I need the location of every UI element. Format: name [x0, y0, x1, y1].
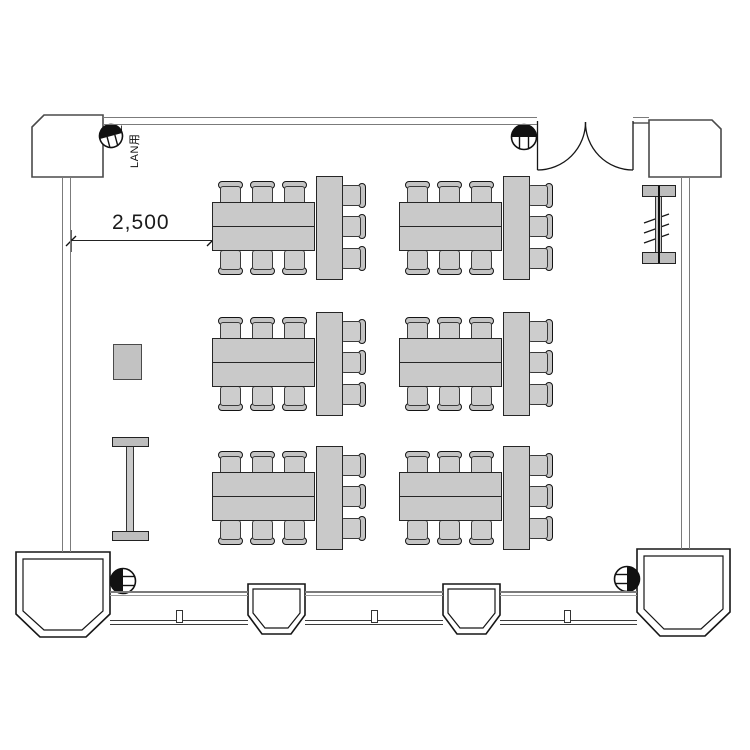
end-table	[503, 176, 530, 280]
outlet-symbol-bottom-left	[111, 569, 136, 594]
door-left-swing-arc	[538, 122, 586, 170]
top-right-wall-block	[649, 120, 721, 177]
chair-seat	[284, 251, 305, 271]
bottom-left-bay-column	[16, 552, 110, 637]
long-table-pair	[212, 338, 315, 387]
chair-seat	[471, 521, 492, 541]
left-ibeam-top-flange	[112, 437, 149, 447]
chair-seat	[439, 251, 460, 271]
chair-seat	[439, 521, 460, 541]
bottom-facade-line-2	[500, 624, 637, 625]
chair	[528, 484, 553, 509]
bottom-sill-line-2	[305, 595, 443, 596]
equipment-box	[113, 344, 142, 380]
bottom-right-bay-column	[637, 549, 730, 636]
chair	[341, 382, 366, 407]
floor-plan: 2,500 2 LAN用	[0, 0, 750, 750]
chair	[341, 516, 366, 541]
chair	[528, 453, 553, 478]
table-divider-line	[399, 496, 502, 497]
left-ibeam-web	[126, 446, 134, 532]
bottom-sill-line-2	[500, 595, 637, 596]
chair	[469, 520, 494, 545]
chair	[341, 183, 366, 208]
long-table-pair	[212, 202, 315, 251]
chair	[437, 520, 462, 545]
left-wall-outer-line	[62, 178, 63, 552]
window-mullion	[371, 610, 378, 623]
chair	[437, 250, 462, 275]
chair-seat	[529, 185, 549, 206]
chair-seat	[342, 321, 362, 342]
chair-seat	[252, 387, 273, 407]
chair-seat	[529, 384, 549, 405]
chair-seat	[284, 521, 305, 541]
chair-seat	[342, 185, 362, 206]
chair	[528, 319, 553, 344]
chair-seat	[342, 486, 362, 507]
chair	[405, 250, 430, 275]
right-wall-inner-line	[681, 177, 682, 549]
table-cluster	[212, 312, 367, 416]
bottom-facade-line-2	[110, 624, 248, 625]
bottom-sill-line	[500, 591, 637, 593]
dimension-label: 2,500	[112, 211, 170, 235]
bottom-sill-line	[305, 591, 443, 593]
bottom-sill-line	[110, 591, 248, 593]
window-mullion	[564, 610, 571, 623]
chair-seat	[529, 321, 549, 342]
chair-seat	[439, 387, 460, 407]
top-wall-right-stub	[633, 117, 649, 118]
lan-count-label: 2	[113, 124, 125, 131]
top-left-wall-block	[32, 115, 103, 177]
table-cluster	[399, 176, 554, 280]
table-cluster	[399, 312, 554, 416]
chair-seat	[220, 251, 241, 271]
chair-seat	[529, 352, 549, 373]
chair-seat	[529, 248, 549, 269]
chair-seat	[407, 387, 428, 407]
end-table	[316, 176, 343, 280]
chair	[282, 386, 307, 411]
chair-seat	[284, 387, 305, 407]
outlet-symbol-bottom-right	[615, 567, 640, 592]
chair-seat	[529, 455, 549, 476]
chair	[528, 246, 553, 271]
chair	[469, 386, 494, 411]
chair	[250, 520, 275, 545]
long-table-pair	[212, 472, 315, 521]
bottom-sill-line-2	[110, 595, 248, 596]
chair-seat	[529, 486, 549, 507]
chair-seat	[407, 521, 428, 541]
table-cluster	[212, 446, 367, 550]
bottom-pier-right	[443, 584, 500, 634]
chair	[528, 516, 553, 541]
chair	[218, 250, 243, 275]
bottom-facade-line-2	[305, 624, 443, 625]
table-divider-line	[399, 226, 502, 227]
chair	[250, 386, 275, 411]
right-ibeam-centerline	[658, 186, 660, 263]
right-wall-outer-line	[689, 177, 690, 549]
chair-seat	[252, 251, 273, 271]
outlet-symbol-door	[512, 125, 537, 150]
left-wall-inner-line	[70, 178, 71, 552]
chair	[528, 183, 553, 208]
long-table-pair	[399, 202, 502, 251]
chair	[218, 520, 243, 545]
end-table	[503, 446, 530, 550]
table-cluster	[399, 446, 554, 550]
end-table	[316, 312, 343, 416]
left-ibeam-bottom-flange	[112, 531, 149, 541]
top-wall-inner-line	[103, 124, 537, 125]
chair	[341, 484, 366, 509]
chair-seat	[529, 518, 549, 539]
long-table-pair	[399, 472, 502, 521]
chair	[282, 520, 307, 545]
table-cluster	[212, 176, 367, 280]
chair	[528, 214, 553, 239]
table-divider-line	[212, 496, 315, 497]
long-table-pair	[399, 338, 502, 387]
double-door	[538, 121, 634, 170]
chair-seat	[220, 387, 241, 407]
chair-seat	[342, 384, 362, 405]
chair-seat	[342, 216, 362, 237]
chair	[405, 520, 430, 545]
dimension-line	[71, 240, 212, 241]
chair-seat	[252, 521, 273, 541]
window-mullion	[176, 610, 183, 623]
chair-seat	[220, 521, 241, 541]
bottom-pier-left	[248, 584, 305, 634]
chair	[341, 453, 366, 478]
chair	[528, 382, 553, 407]
chair-seat	[342, 248, 362, 269]
chair-seat	[342, 518, 362, 539]
lan-label: LAN用	[126, 134, 142, 168]
chair	[405, 386, 430, 411]
chair	[469, 250, 494, 275]
chair	[282, 250, 307, 275]
chair-seat	[342, 455, 362, 476]
door-right-swing-arc	[585, 122, 633, 170]
chair-seat	[471, 387, 492, 407]
table-divider-line	[399, 362, 502, 363]
end-table	[316, 446, 343, 550]
chair	[528, 350, 553, 375]
top-wall-outer-line	[103, 117, 537, 118]
chair-seat	[342, 352, 362, 373]
table-divider-line	[212, 362, 315, 363]
chair-seat	[529, 216, 549, 237]
chair	[437, 386, 462, 411]
chair-seat	[471, 251, 492, 271]
chair	[341, 214, 366, 239]
end-table	[503, 312, 530, 416]
chair	[341, 350, 366, 375]
chair	[250, 250, 275, 275]
chair	[341, 319, 366, 344]
chair	[341, 246, 366, 271]
chair-seat	[407, 251, 428, 271]
chair	[218, 386, 243, 411]
table-divider-line	[212, 226, 315, 227]
